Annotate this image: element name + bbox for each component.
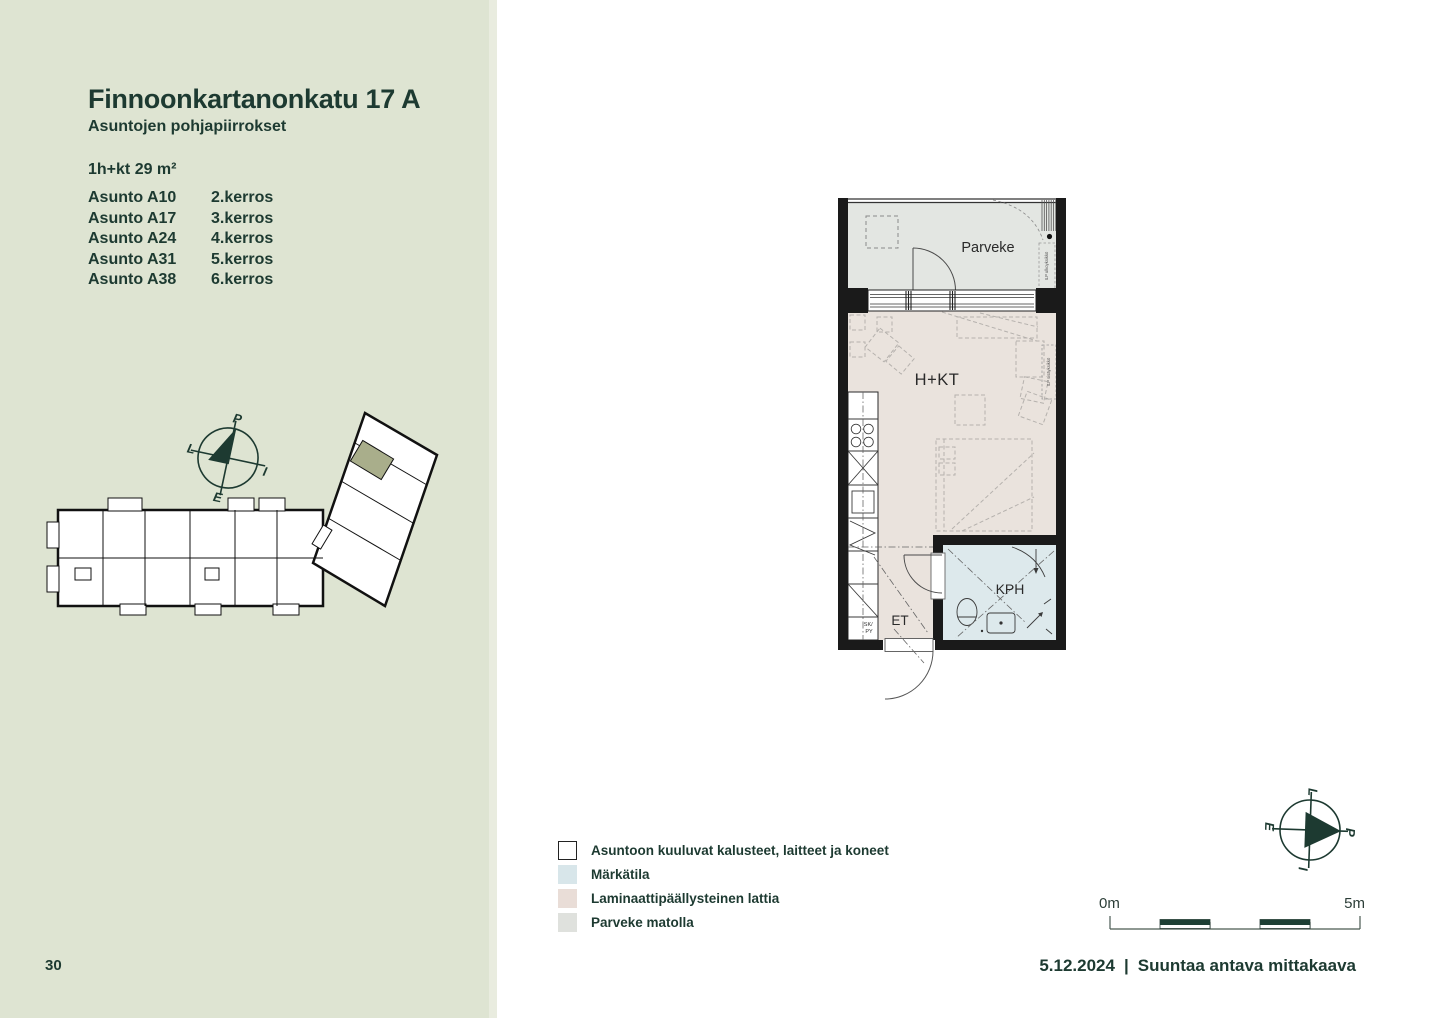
compass-west-label: L [1305,788,1320,797]
legend: Asuntoon kuuluvat kalusteet, laitteet ja… [558,841,889,937]
apartment-floor: 3.kerros [211,209,273,230]
compass-south-label: E [212,489,224,506]
legend-swatch-fixtures [558,841,577,860]
heatpump-indoor-label: ILP sisäyksikkö [1046,357,1051,386]
heatpump-outdoor-label: ILP ulkoyksikkö [1044,251,1049,280]
apartment-list: Asunto A10 2.kerros Asunto A17 3.kerros … [88,188,273,291]
balcony-drain-dot [1047,234,1052,239]
balcony-glazing [1042,200,1056,231]
scale-segments [1160,920,1310,929]
compass-south-label: E [1262,822,1277,832]
balcony-floor [848,202,1056,290]
brochure-page: { "page": {"number": "30", "date": "5.12… [0,0,1440,1018]
legend-item: Parveke matolla [558,913,889,932]
legend-label: Laminaattipäällysteinen lattia [591,891,779,906]
apartment-name: Asunto A24 [88,229,211,250]
scale-start-label: 0m [1099,895,1120,912]
closet-label: SK/ PY [864,622,874,635]
divider: | [1124,956,1129,976]
balcony-railing [848,199,1056,203]
page-number: 30 [45,957,62,974]
apartment-name: Asunto A38 [88,270,211,291]
scale-bar: 0m 5m [1097,893,1367,935]
apartment-floor: 6.kerros [211,270,273,291]
window-band [868,290,1036,311]
legend-swatch-laminate [558,889,577,908]
compass-north-label: P [1343,828,1358,838]
legend-item: Asuntoon kuuluvat kalusteet, laitteet ja… [558,841,889,860]
apartment-floor: 5.kerros [211,250,273,271]
compass-east-label: I [1296,867,1311,872]
apartment-row: Asunto A38 6.kerros [88,270,273,291]
building-footprint [47,413,437,615]
date: 5.12.2024 [1039,956,1115,976]
compass-rose-plan: P L I E [1262,782,1358,878]
compass-rose-keyplan: P L I E [177,402,278,513]
key-plan: P L I E [45,398,465,633]
room-label-balcony: Parveke [961,240,1014,256]
unit-type-label: 1h+kt 29 m² [88,161,176,179]
scale-note: Suuntaa antava mittakaava [1138,956,1356,976]
apartment-floor: 2.kerros [211,188,273,209]
compass-west-label: L [186,440,197,456]
apartment-row: Asunto A31 5.kerros [88,250,273,271]
room-label-bathroom: KPH [996,581,1025,597]
apartment-row: Asunto A17 3.kerros [88,209,273,230]
apartment-floor: 4.kerros [211,229,273,250]
room-label-entry: ET [891,613,908,628]
kitchen-fixtures: SK/ PY [848,392,878,640]
apartment-name: Asunto A10 [88,188,211,209]
compass-north-label: P [232,410,244,427]
legend-swatch-wetroom [558,865,577,884]
legend-label: Parveke matolla [591,915,694,930]
apartment-floorplan: ILP ulkoyksikkö Parveke [830,195,1075,710]
legend-item: Laminaattipäällysteinen lattia [558,889,889,908]
footer-note: 5.12.2024 | Suuntaa antava mittakaava [1039,956,1356,976]
apartment-name: Asunto A31 [88,250,211,271]
legend-item: Märkätila [558,865,889,884]
apartment-row: Asunto A24 4.kerros [88,229,273,250]
page-subtitle: Asuntojen pohjapiirrokset [88,118,286,136]
page-title: Finnoonkartanonkatu 17 A [88,84,420,115]
legend-label: Asuntoon kuuluvat kalusteet, laitteet ja… [591,843,889,858]
apartment-row: Asunto A10 2.kerros [88,188,273,209]
legend-label: Märkätila [591,867,650,882]
scale-end-label: 5m [1344,895,1365,912]
entry-door [883,629,935,699]
apartment-name: Asunto A17 [88,209,211,230]
room-label-living: H+KT [915,371,960,389]
legend-swatch-balcony [558,913,577,932]
